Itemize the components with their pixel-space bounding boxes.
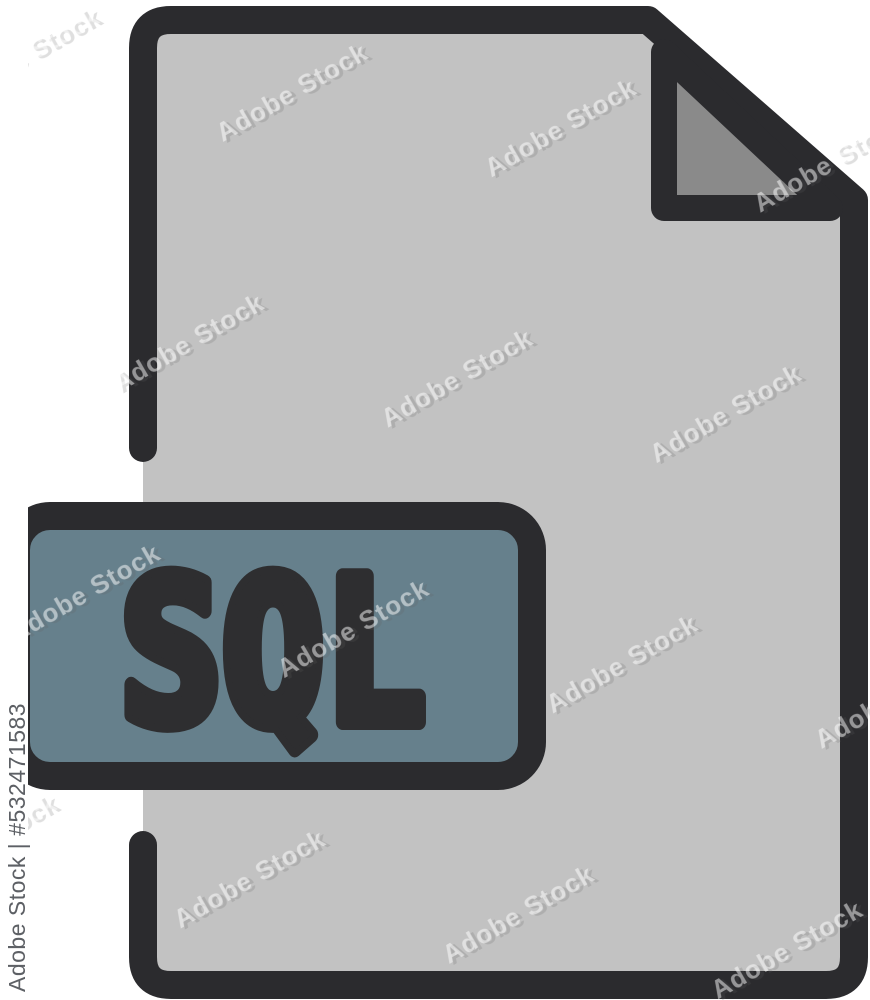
- sql-file-icon-illustration: Adobe Stock Adobe Stock Adobe Stock Adob…: [0, 0, 870, 1000]
- stock-image-preview: Adobe Stock Adobe Stock Adobe Stock Adob…: [0, 0, 870, 1000]
- stock-credit-text: Adobe Stock | #532471583: [4, 703, 30, 992]
- watermark-overlay: [0, 0, 870, 1000]
